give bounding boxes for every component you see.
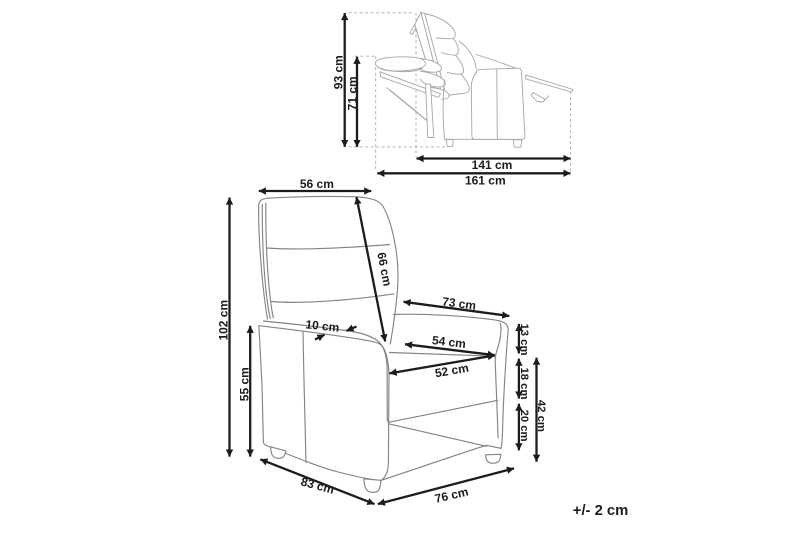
svg-text:55 cm: 55 cm [238, 367, 252, 401]
svg-text:141 cm: 141 cm [472, 158, 513, 172]
svg-text:18 cm: 18 cm [518, 367, 530, 399]
svg-text:73 cm: 73 cm [441, 294, 477, 312]
svg-text:+/- 2 cm: +/- 2 cm [573, 503, 629, 519]
svg-text:56 cm: 56 cm [300, 177, 334, 191]
svg-text:93 cm: 93 cm [331, 55, 345, 89]
svg-text:13 cm: 13 cm [518, 323, 530, 355]
svg-text:161 cm: 161 cm [465, 173, 506, 187]
svg-text:71 cm: 71 cm [346, 76, 360, 110]
svg-text:102 cm: 102 cm [217, 300, 231, 341]
svg-text:83 cm: 83 cm [299, 474, 335, 496]
svg-text:20 cm: 20 cm [518, 410, 530, 442]
svg-text:42 cm: 42 cm [535, 400, 547, 432]
